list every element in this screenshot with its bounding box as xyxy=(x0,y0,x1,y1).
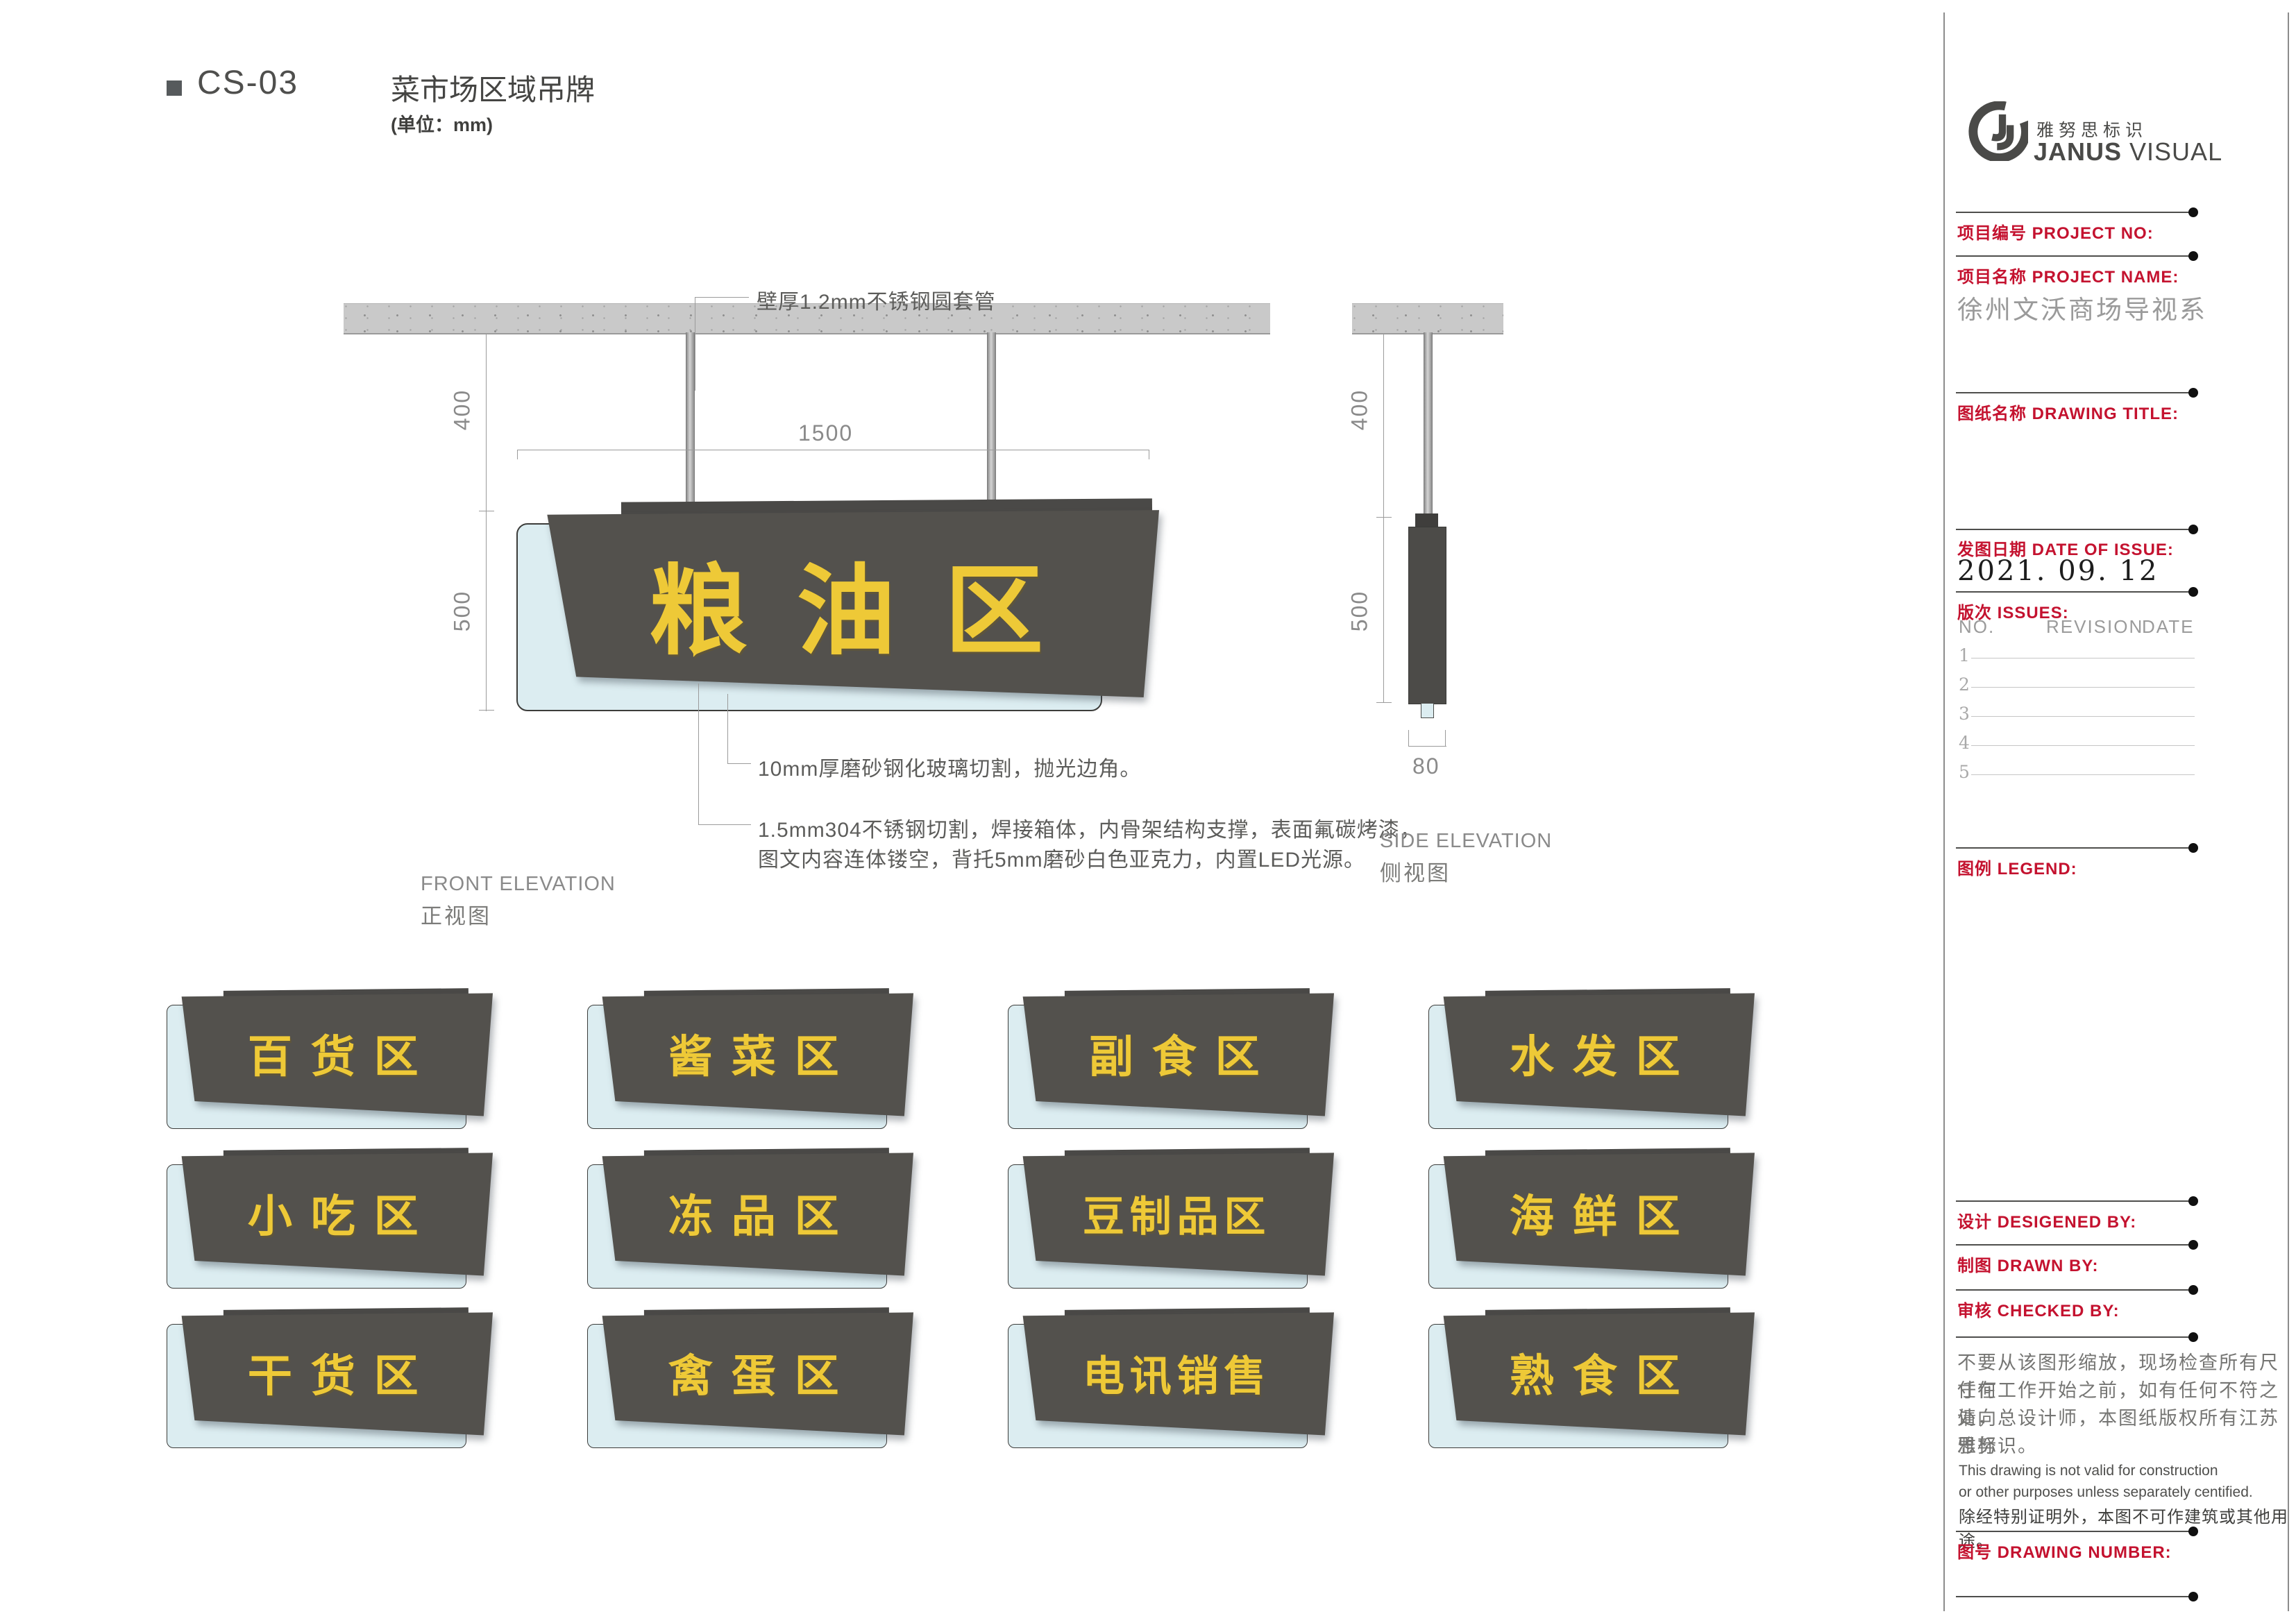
issue-row-line xyxy=(1971,658,2195,658)
area-sign-jiangcai: 酱菜区 xyxy=(587,988,913,1130)
area-sign-douzhipin: 豆制品区 xyxy=(1008,1148,1334,1290)
sign-label: 冻品区 xyxy=(600,1165,907,1261)
sign-label: 小吃区 xyxy=(180,1165,487,1261)
steel-note-leader-h xyxy=(698,824,751,825)
depth-dim-line xyxy=(1408,746,1446,747)
unit-note: (单位：mm) xyxy=(391,110,493,137)
side-glass-edge xyxy=(1421,703,1434,718)
width-dim-tick-left xyxy=(517,450,518,459)
issue-row-line xyxy=(1971,687,2195,688)
drawing-number-label: 图号 DRAWING NUMBER: xyxy=(1957,1538,2172,1563)
area-sign-qindan: 禽蛋区 xyxy=(587,1307,913,1450)
section-line-issues xyxy=(1956,591,2193,593)
logo-janus: JANUS xyxy=(2034,137,2122,166)
issues-col-no: NO. xyxy=(1959,616,1995,638)
pipe-callout: 壁厚1.2mm不锈钢圆套管 xyxy=(757,284,996,315)
side-dim-tick-mid xyxy=(1376,517,1392,518)
side-sign-cap xyxy=(1415,513,1438,527)
issue-row-line xyxy=(1971,774,2195,775)
sign-label: 干货区 xyxy=(180,1325,487,1421)
project-name-label: 项目名称 PROJECT NAME: xyxy=(1957,263,2179,287)
section-line-disclaimer xyxy=(1956,1336,2193,1338)
steel-note-line1: 1.5mm304不锈钢切割，焊接箱体，内骨架结构支撑，表面氟碳烤漆， xyxy=(758,813,1421,843)
area-sign-shuifa: 水发区 xyxy=(1428,988,1755,1130)
section-line-drawing-number xyxy=(1956,1531,2193,1532)
area-sign-haixian: 海鲜区 xyxy=(1428,1148,1755,1290)
disclaimer-en-line1: This drawing is not valid for constructi… xyxy=(1959,1460,2218,1481)
side-dim-tick-top xyxy=(1376,333,1392,334)
janus-logo-icon xyxy=(1968,101,2028,161)
side-elevation-label-en: SIDE ELEVATION xyxy=(1380,830,1552,853)
drawn-by-label: 制图 DRAWN BY: xyxy=(1957,1252,2099,1276)
front-dim-500: 500 xyxy=(450,563,475,660)
side-vertical-dim-line xyxy=(1383,333,1384,703)
section-line-checked xyxy=(1956,1289,2193,1291)
area-sign-ganhuo: 干货区 xyxy=(167,1307,493,1450)
legend-label: 图例 LEGEND: xyxy=(1957,855,2077,879)
area-sign-dongpin: 冻品区 xyxy=(587,1148,913,1290)
issue-row-number: 1 xyxy=(1959,645,1970,665)
disclaimer-cn-line4: 思标识。 xyxy=(1957,1432,2038,1460)
checked-by-label: 审核 CHECKED BY: xyxy=(1957,1297,2120,1321)
section-line-date xyxy=(1956,529,2193,530)
sign-label: 酱菜区 xyxy=(600,1005,907,1102)
side-elevation-label-cn: 侧视图 xyxy=(1380,856,1451,887)
sheet-code: CS-03 xyxy=(197,64,298,102)
main-sign: 粮油区 xyxy=(514,498,1159,715)
issues-col-revision: REVISION xyxy=(2046,616,2143,638)
ceiling-band-side xyxy=(1352,303,1503,334)
front-vertical-dim-line xyxy=(486,333,487,711)
issue-row-number: 4 xyxy=(1959,733,1970,753)
pipe-leader-horizontal xyxy=(695,297,749,298)
depth-dim-80: 80 xyxy=(1412,754,1440,779)
disclaimer-en-line2: or other purposes unless separately cent… xyxy=(1959,1481,2253,1503)
section-line-drawn xyxy=(1956,1244,2193,1246)
project-no-label: 项目编号 PROJECT NO: xyxy=(1957,219,2154,244)
steel-note-line2: 图文内容连体镂空，背托5mm磨砂白色亚克力，内置LED光源。 xyxy=(758,842,1365,873)
sign-label: 副食区 xyxy=(1021,1005,1328,1102)
area-sign-shushi: 熟食区 xyxy=(1428,1307,1755,1450)
sign-label: 海鲜区 xyxy=(1442,1165,1748,1261)
section-line-project-name xyxy=(1956,255,2193,257)
side-hanging-rod xyxy=(1424,332,1433,516)
front-dim-tick-top xyxy=(479,333,494,334)
pipe-leader-vertical xyxy=(695,297,695,391)
area-sign-fushi: 副食区 xyxy=(1008,988,1334,1130)
project-name-value: 徐州文沃商场导视系 xyxy=(1957,289,2207,326)
issue-row-line xyxy=(1971,716,2195,717)
logo-visual: VISUAL xyxy=(2122,137,2222,166)
glass-note-leader-v xyxy=(727,694,728,763)
area-sign-dianxun: 电讯销售 xyxy=(1008,1307,1334,1450)
front-elevation-label-en: FRONT ELEVATION xyxy=(421,873,616,896)
steel-note-leader-v xyxy=(698,683,699,824)
depth-dim-tick-right xyxy=(1445,730,1446,747)
section-line-bottom xyxy=(1956,1596,2193,1597)
width-dim-tick-right xyxy=(1149,450,1149,459)
section-line-project-no xyxy=(1956,212,2193,213)
title-bullet-square xyxy=(167,80,182,96)
issue-row-line xyxy=(1971,745,2195,746)
front-dim-tick-mid xyxy=(479,511,494,511)
sign-label: 水发区 xyxy=(1442,1005,1748,1102)
area-sign-xiaochi: 小吃区 xyxy=(167,1148,493,1290)
sign-label: 百货区 xyxy=(180,1005,487,1102)
depth-dim-tick-left xyxy=(1408,730,1409,747)
front-dim-400: 400 xyxy=(450,362,475,459)
width-dim-1500: 1500 xyxy=(798,420,853,446)
front-dim-tick-bottom xyxy=(479,710,494,711)
area-sign-baihuo: 百货区 xyxy=(167,988,493,1130)
section-line-drawing-title xyxy=(1956,392,2193,393)
date-of-issue-value: 2021. 09. 12 xyxy=(1957,555,2159,587)
drawing-sheet: CS-03 菜市场区域吊牌 (单位：mm) 壁厚1.2mm不锈钢圆套管 400 … xyxy=(0,0,2296,1623)
sign-label: 豆制品区 xyxy=(1021,1165,1328,1261)
side-dim-400: 400 xyxy=(1347,362,1373,459)
front-elevation-label-cn: 正视图 xyxy=(421,899,491,930)
titleblock-divider-left xyxy=(1943,12,1945,1611)
page-title: 菜市场区域吊牌 xyxy=(391,67,595,109)
hanging-rod-left xyxy=(686,332,695,504)
glass-note-leader-h xyxy=(727,763,751,764)
side-sign-body xyxy=(1408,527,1446,704)
sign-label: 禽蛋区 xyxy=(600,1325,907,1421)
sign-label: 熟食区 xyxy=(1442,1325,1748,1421)
issues-col-date: DATE xyxy=(2142,616,2194,638)
glass-note: 10mm厚磨砂钢化玻璃切割，抛光边角。 xyxy=(758,751,1141,782)
drawing-title-label: 图纸名称 DRAWING TITLE: xyxy=(1957,400,2179,424)
hanging-rod-right xyxy=(987,332,996,504)
side-dim-tick-bottom xyxy=(1376,702,1392,703)
section-line-legend xyxy=(1956,847,2193,849)
width-dim-line xyxy=(517,450,1149,450)
sign-label: 电讯销售 xyxy=(1021,1325,1328,1421)
side-dim-500: 500 xyxy=(1347,563,1373,660)
logo-english-name: JANUS VISUAL xyxy=(2034,137,2222,167)
sign-label: 粮油区 xyxy=(546,529,1147,676)
designed-by-label: 设计 DESIGENED BY: xyxy=(1957,1208,2136,1232)
issue-row-number: 5 xyxy=(1959,762,1970,782)
issue-row-number: 3 xyxy=(1959,704,1970,724)
issue-row-number: 2 xyxy=(1959,674,1970,695)
section-line-designed xyxy=(1956,1200,2193,1202)
